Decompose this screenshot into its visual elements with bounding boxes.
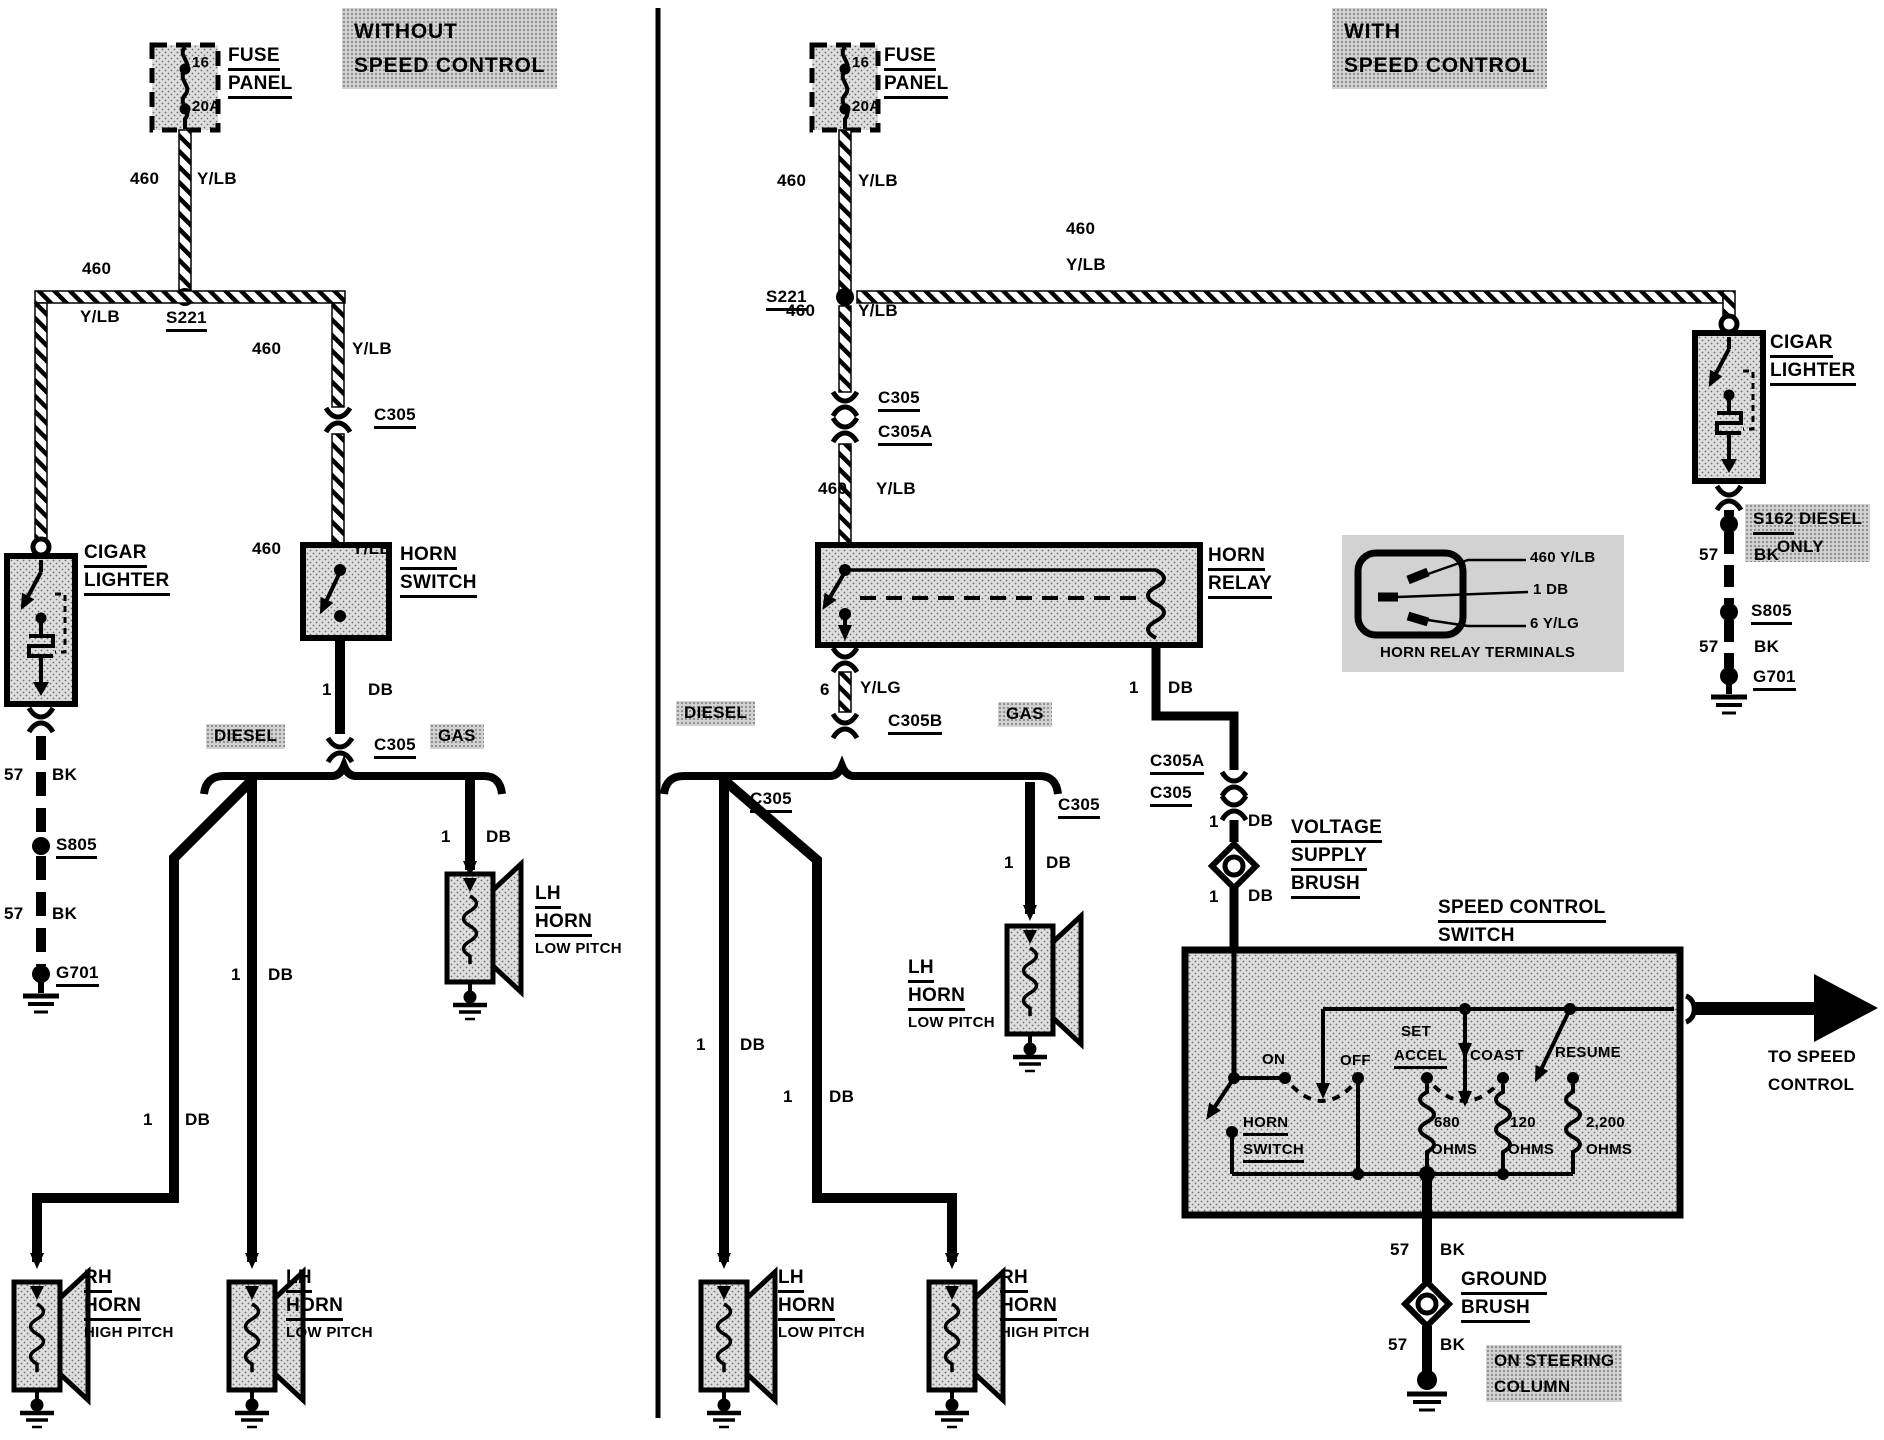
fuse-panel-label: PANEL <box>228 74 292 99</box>
resistor-unit-ohms: OHMS <box>1431 1142 1477 1159</box>
wire-label-6: 6 <box>820 681 830 700</box>
gas-tag: GAS <box>998 702 1052 727</box>
wire-label-db: DB <box>829 1088 854 1107</box>
right-diagram <box>664 45 1878 1427</box>
title-line: SPEED CONTROL <box>354 49 545 83</box>
wire-label-db: DB <box>1248 887 1273 906</box>
lh-horn-label: LH <box>535 884 561 909</box>
connector-label-c305: C305 <box>374 406 416 429</box>
wire-label-1: 1 <box>783 1088 793 1107</box>
title-line: WITH <box>1344 15 1535 49</box>
horn-switch-label: HORN <box>400 545 457 570</box>
voltage-supply-brush-label: VOLTAGE <box>1291 818 1382 843</box>
on-steering-column-note: ON STEERING COLUMN <box>1486 1345 1622 1402</box>
wire-label-1: 1 <box>1209 813 1219 832</box>
wire-label-460: 460 <box>252 540 281 559</box>
wire-label-bk: BK <box>1754 546 1779 565</box>
horn-switch-contact-label: SWITCH <box>1243 1142 1304 1163</box>
rh-horn-label: HORN <box>84 1296 141 1321</box>
horn-switch-box-left <box>303 545 389 638</box>
wire-label-460: 460 <box>777 172 806 191</box>
ground-brush-label: GROUND <box>1461 1270 1547 1295</box>
wire-label-db: DB <box>185 1111 210 1130</box>
wire-label-ylb: Y/LB <box>352 540 392 559</box>
connector-label-c305b: C305B <box>888 712 942 735</box>
horn-relay-label: HORN <box>1208 546 1265 571</box>
resistor-unit-ohms: OHMS <box>1586 1142 1632 1159</box>
switch-position-set: SET <box>1401 1024 1431 1041</box>
cigar-lighter-symbol-right <box>1695 333 1763 481</box>
ground-g701-left <box>32 965 50 983</box>
ground-brush-label: BRUSH <box>1461 1298 1530 1323</box>
wire-label-57: 57 <box>1699 638 1719 657</box>
switch-position-on: ON <box>1262 1052 1285 1069</box>
connector-label-c305: C305 <box>374 736 416 759</box>
wire-label-1: 1 <box>441 828 451 847</box>
wire-label-bk: BK <box>1440 1241 1465 1260</box>
to-speed-control-note: CONTROL <box>1768 1076 1854 1095</box>
splice-s805-right <box>1720 603 1738 621</box>
gas-tag: GAS <box>430 724 484 749</box>
title-with-speed-control: WITH SPEED CONTROL <box>1332 8 1547 89</box>
horn-switch-label: SWITCH <box>400 573 477 598</box>
pitch-label: HIGH PITCH <box>1000 1325 1090 1342</box>
wire-label-460: 460 <box>818 480 847 499</box>
lh-horn-right <box>701 1272 775 1427</box>
splice-label-s162: S162 <box>1753 507 1794 535</box>
lh-horn-label: HORN <box>778 1296 835 1321</box>
switch-position-accel: ACCEL <box>1394 1048 1447 1069</box>
connector-label-c305a: C305A <box>878 423 932 446</box>
wire-label-57: 57 <box>4 766 24 785</box>
rh-horn-right <box>929 1272 1003 1427</box>
connector-label-c305: C305 <box>1058 796 1100 819</box>
wire-label-bk: BK <box>52 766 77 785</box>
wire-label-db: DB <box>486 828 511 847</box>
wire-label-57: 57 <box>1388 1336 1408 1355</box>
lh-horn-label: LH <box>778 1268 804 1293</box>
terminal-label-460-ylb: 460 Y/LB <box>1530 550 1596 567</box>
resistor-unit-ohms: OHMS <box>1508 1142 1554 1159</box>
wire-label-460: 460 <box>786 302 815 321</box>
wire-label-ylb: Y/LB <box>80 308 120 327</box>
wire-label-1: 1 <box>231 966 241 985</box>
lh-horn-gas-right <box>1007 916 1081 1071</box>
cigar-lighter-label: LIGHTER <box>84 571 170 596</box>
wire-label-bk: BK <box>1754 638 1779 657</box>
resistor-value-680: 680 <box>1434 1115 1460 1132</box>
horn-relay-terminals-caption: HORN RELAY TERMINALS <box>1380 645 1575 662</box>
title-line: SPEED CONTROL <box>1344 49 1535 83</box>
cigar-lighter-label: CIGAR <box>84 543 147 568</box>
wire-label-ylb: Y/LB <box>858 302 898 321</box>
wire-label-1: 1 <box>1129 679 1139 698</box>
title-without-speed-control: WITHOUT SPEED CONTROL <box>342 8 557 89</box>
wire-label-1: 1 <box>1004 854 1014 873</box>
switch-position-resume: RESUME <box>1555 1045 1621 1062</box>
horn-relay-label: RELAY <box>1208 574 1272 599</box>
wire-label-ylb: Y/LB <box>352 340 392 359</box>
resistor-value-2200: 2,200 <box>1586 1115 1625 1132</box>
diesel-tag: DIESEL <box>676 701 755 726</box>
to-speed-control-note: TO SPEED <box>1768 1048 1856 1067</box>
speed-control-switch-label: SWITCH <box>1438 926 1515 951</box>
horn-relay-box <box>818 545 1200 645</box>
lh-horn-label: HORN <box>286 1296 343 1321</box>
wire-label-db: DB <box>1248 812 1273 831</box>
wire-label-db: DB <box>1168 679 1193 698</box>
wire-label-ylb: Y/LB <box>876 480 916 499</box>
splice-label-s805: S805 <box>56 836 97 859</box>
splice-s221-right <box>836 288 854 306</box>
fuse-pin-label: 16 <box>192 55 209 72</box>
wire-label-db: DB <box>1046 854 1071 873</box>
pitch-label: LOW PITCH <box>535 941 622 958</box>
diesel-word: DIESEL <box>1799 509 1862 528</box>
diesel-tag: DIESEL <box>206 724 285 749</box>
title-line: WITHOUT <box>354 15 545 49</box>
splice-label-s221: S221 <box>166 309 207 332</box>
terminal-label-6-ylg: 6 Y/LG <box>1530 616 1579 633</box>
wire-label-57: 57 <box>4 905 24 924</box>
ground-label-g701: G701 <box>56 964 99 987</box>
wire-label-db: DB <box>268 966 293 985</box>
pitch-label: HIGH PITCH <box>84 1325 174 1342</box>
voltage-supply-brush-label: BRUSH <box>1291 874 1360 899</box>
wire-label-1: 1 <box>696 1036 706 1055</box>
fuse-panel-label: PANEL <box>884 74 948 99</box>
pitch-label: LOW PITCH <box>286 1325 373 1342</box>
wire-label-ylb: Y/LB <box>858 172 898 191</box>
wire-label-460: 460 <box>82 260 111 279</box>
ground-g701-right <box>1720 667 1738 685</box>
terminal-label-1-db: 1 DB <box>1533 582 1568 599</box>
wiring-diagram-page: WITHOUT SPEED CONTROL WITH SPEED CONTROL… <box>0 0 1884 1440</box>
fuse-rating-label: 20A <box>852 99 880 116</box>
fuse-panel-label: FUSE <box>884 46 936 71</box>
speed-control-switch-label: SPEED CONTROL <box>1438 898 1606 923</box>
wire-label-460: 460 <box>252 340 281 359</box>
wire-label-bk: BK <box>1440 1336 1465 1355</box>
lh-horn-label: LH <box>286 1268 312 1293</box>
horn-switch-contact-label: HORN <box>1243 1115 1288 1136</box>
rh-horn-label: RH <box>1000 1268 1028 1293</box>
cigar-lighter-label: LIGHTER <box>1770 361 1856 386</box>
wire-label-1: 1 <box>322 681 332 700</box>
wire-label-57: 57 <box>1390 1241 1410 1260</box>
to-speed-control-arrow <box>1814 974 1878 1042</box>
wire-label-ylg: Y/LG <box>860 679 901 698</box>
connector-label-c305: C305 <box>1150 784 1192 807</box>
splice-s805-left <box>32 837 50 855</box>
wire-label-57: 57 <box>1699 546 1719 565</box>
rh-horn-label: HORN <box>1000 1296 1057 1321</box>
fuse-rating-label: 20A <box>192 99 220 116</box>
connector-label-c305a: C305A <box>1150 752 1204 775</box>
wire-label-1: 1 <box>143 1111 153 1130</box>
wire-label-ylb: Y/LB <box>197 170 237 189</box>
rh-horn-label: RH <box>84 1268 112 1293</box>
fuse-pin-label: 16 <box>852 55 869 72</box>
pitch-label: LOW PITCH <box>908 1015 995 1032</box>
lh-horn-gas-left <box>447 864 521 1019</box>
splice-s162 <box>1720 515 1738 533</box>
switch-position-off: OFF <box>1340 1053 1371 1070</box>
connector-label-c305: C305 <box>878 389 920 412</box>
cigar-lighter-symbol-left <box>7 556 75 704</box>
cigar-lighter-label: CIGAR <box>1770 333 1833 358</box>
connector-label-c305: C305 <box>750 790 792 813</box>
pitch-label: LOW PITCH <box>778 1325 865 1342</box>
lh-horn-label: LH <box>908 958 934 983</box>
wire-label-bk: BK <box>52 905 77 924</box>
splice-label-s805: S805 <box>1751 602 1792 625</box>
wire-label-460: 460 <box>130 170 159 189</box>
fuse-panel-label: FUSE <box>228 46 280 71</box>
resistor-value-120: 120 <box>1510 1115 1536 1132</box>
wire-label-db: DB <box>740 1036 765 1055</box>
rh-horn-left <box>14 1272 88 1427</box>
wire-label-1: 1 <box>1209 888 1219 907</box>
wire-label-db: DB <box>368 681 393 700</box>
lh-horn-label: HORN <box>535 912 592 937</box>
wire-label-ylb: Y/LB <box>1066 256 1106 275</box>
voltage-supply-brush-label: SUPPLY <box>1291 846 1367 871</box>
ground-label-g701: G701 <box>1753 668 1796 691</box>
wire-label-460: 460 <box>1066 220 1095 239</box>
switch-position-coast: COAST <box>1470 1048 1524 1065</box>
lh-horn-label: HORN <box>908 986 965 1011</box>
